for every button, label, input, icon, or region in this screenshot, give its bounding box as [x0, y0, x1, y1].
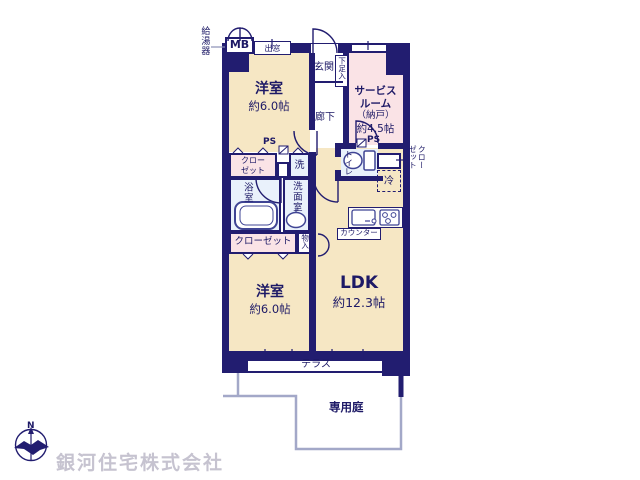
water-heater-label: 給湯器	[199, 26, 209, 56]
garden-outline	[223, 377, 401, 449]
wall-service-bottom-right	[378, 143, 410, 149]
ldk-name: LDK	[316, 274, 402, 294]
wall-corner-topright	[386, 43, 410, 75]
entrance-opening	[311, 44, 338, 53]
service-room-line2: ルーム	[348, 98, 403, 110]
closet-right-col2: ゼット	[408, 145, 417, 169]
toilet-label: トイレ	[342, 150, 352, 176]
company-watermark: 銀河住宅株式会社	[56, 448, 224, 475]
western-top-name: 洋室	[230, 81, 308, 97]
closet-lower-label: クローゼット	[229, 237, 297, 248]
closet-notch	[377, 153, 401, 169]
compass-icon	[14, 427, 49, 461]
service-room-line3: （納戸）	[348, 111, 403, 122]
washroom-label: 洗面室	[290, 181, 301, 213]
service-room-line4: 約4.5帖	[348, 123, 403, 135]
meter-box-label: MB	[225, 39, 254, 52]
bathroom-box	[229, 178, 281, 232]
corridor-label: 廊下	[315, 112, 335, 124]
entrance-step-line	[313, 81, 343, 83]
washer-pan	[277, 162, 289, 178]
entrance-label: 玄関	[314, 62, 334, 74]
refrigerator-label: 冷	[377, 176, 401, 188]
terrace-label: テラス	[222, 359, 410, 371]
garden-label: 専用庭	[329, 401, 364, 414]
compass-north-label: N	[27, 421, 35, 431]
bathroom-label: 浴室	[241, 182, 252, 203]
bay-window-label: 出窓	[254, 44, 291, 53]
ldk-size: 約12.3帖	[316, 296, 402, 310]
floorplan-canvas: 給湯器 MB 出窓 玄関 下足入 廊下 洋室 約6.0帖 サービス ルーム （納…	[0, 0, 640, 480]
pillar-topleft	[222, 53, 249, 72]
shoe-cabinet-label: 下足入	[337, 57, 346, 80]
washer-label: 洗	[289, 160, 310, 172]
counter-label: カウンター	[337, 229, 381, 238]
closet-upper-line2: ゼット	[229, 166, 277, 175]
western-bottom-size: 約6.0帖	[230, 303, 310, 316]
closet-right-col1: クロー	[417, 145, 426, 169]
wall-right	[403, 43, 410, 361]
western-top-size: 約6.0帖	[230, 100, 308, 113]
service-window	[352, 44, 386, 52]
wall-left	[222, 43, 229, 361]
western-bottom-name: 洋室	[230, 284, 310, 300]
ps-left-label: PS	[263, 137, 276, 147]
kitchen-counter	[348, 207, 403, 228]
wall-toilet-bottom	[335, 176, 383, 181]
service-room-line1: サービス	[348, 85, 403, 97]
storage-label: 物入	[300, 234, 309, 249]
closet-upper-line1: クロー	[229, 156, 277, 165]
ps-right-label: PS	[367, 135, 380, 145]
